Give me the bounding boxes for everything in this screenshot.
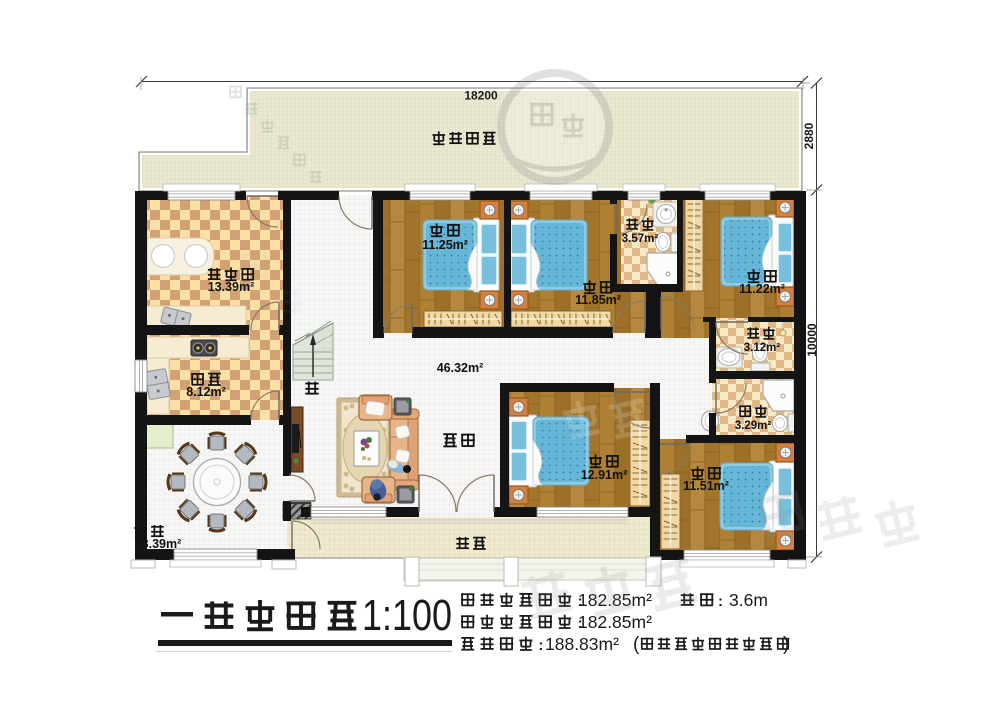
svg-text:11.85m²: 11.85m² bbox=[575, 293, 621, 307]
svg-text:): ) bbox=[783, 634, 789, 655]
svg-text:1:100: 1:100 bbox=[362, 591, 452, 640]
svg-text:188.83m²: 188.83m² bbox=[545, 634, 619, 654]
svg-text:12.91m²: 12.91m² bbox=[581, 468, 628, 482]
svg-text::: : bbox=[538, 637, 543, 654]
svg-text:18200: 18200 bbox=[464, 89, 498, 103]
svg-text:11.22m²: 11.22m² bbox=[739, 282, 785, 296]
svg-text:3.29m²: 3.29m² bbox=[735, 420, 772, 432]
svg-text::: : bbox=[718, 593, 723, 610]
svg-text:13.39m²: 13.39m² bbox=[208, 280, 255, 294]
svg-text:8.12m²: 8.12m² bbox=[186, 385, 226, 399]
svg-text:182.85m²: 182.85m² bbox=[578, 612, 652, 632]
svg-text:11.25m²: 11.25m² bbox=[422, 238, 468, 252]
svg-text:3.57m²: 3.57m² bbox=[622, 233, 659, 245]
svg-text:46.32m²: 46.32m² bbox=[437, 361, 484, 375]
svg-text:2880: 2880 bbox=[802, 122, 816, 149]
svg-text:13.39m²: 13.39m² bbox=[135, 537, 182, 551]
svg-text:10000: 10000 bbox=[805, 323, 819, 357]
svg-text:(: ( bbox=[633, 634, 640, 655]
svg-text:3.12m²: 3.12m² bbox=[744, 342, 781, 354]
svg-text:11.51m²: 11.51m² bbox=[683, 479, 729, 493]
svg-text:3.6m: 3.6m bbox=[729, 590, 768, 610]
